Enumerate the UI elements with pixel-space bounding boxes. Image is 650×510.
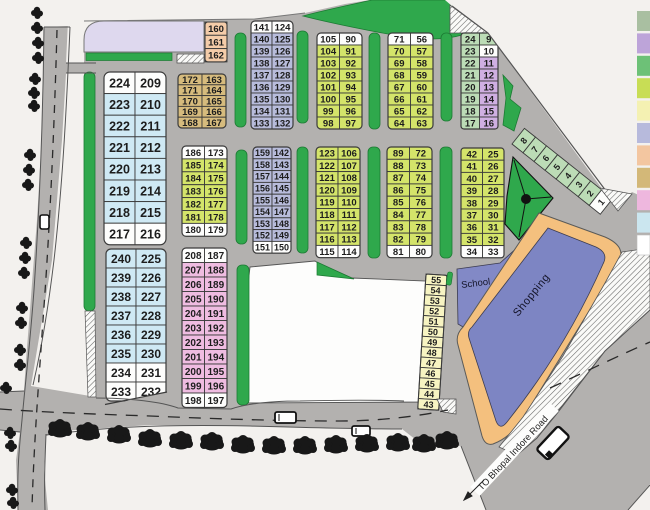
svg-text:153: 153 bbox=[255, 219, 270, 229]
svg-text:66: 66 bbox=[394, 94, 405, 105]
svg-text:133: 133 bbox=[254, 118, 270, 129]
svg-text:176: 176 bbox=[208, 187, 224, 198]
svg-text:86: 86 bbox=[393, 186, 404, 197]
svg-text:28: 28 bbox=[488, 186, 499, 197]
svg-text:149: 149 bbox=[274, 231, 289, 241]
svg-text:72: 72 bbox=[416, 149, 427, 160]
svg-text:159: 159 bbox=[255, 148, 270, 158]
svg-text:47: 47 bbox=[426, 358, 437, 369]
svg-text:35: 35 bbox=[467, 235, 478, 246]
svg-text:17: 17 bbox=[465, 118, 476, 129]
svg-text:189: 189 bbox=[207, 280, 224, 291]
svg-text:129: 129 bbox=[275, 82, 291, 93]
svg-text:220: 220 bbox=[109, 163, 130, 177]
svg-text:91: 91 bbox=[346, 46, 357, 57]
svg-text:67: 67 bbox=[394, 82, 405, 93]
svg-text:179: 179 bbox=[208, 225, 224, 236]
svg-text:156: 156 bbox=[255, 184, 270, 194]
svg-text:101: 101 bbox=[320, 82, 337, 93]
svg-text:104: 104 bbox=[320, 46, 337, 57]
svg-text:131: 131 bbox=[275, 106, 292, 117]
svg-text:13: 13 bbox=[484, 82, 495, 93]
svg-text:148: 148 bbox=[274, 219, 289, 229]
svg-text:24: 24 bbox=[465, 34, 476, 45]
svg-text:63: 63 bbox=[417, 118, 428, 129]
svg-text:95: 95 bbox=[346, 94, 357, 105]
svg-text:206: 206 bbox=[185, 280, 202, 291]
svg-text:83: 83 bbox=[393, 222, 404, 233]
svg-text:107: 107 bbox=[341, 161, 357, 172]
svg-text:192: 192 bbox=[207, 323, 224, 334]
svg-text:222: 222 bbox=[109, 120, 130, 134]
svg-text:113: 113 bbox=[341, 235, 356, 246]
svg-text:233: 233 bbox=[111, 385, 131, 399]
svg-text:26: 26 bbox=[488, 162, 499, 173]
svg-text:145: 145 bbox=[274, 184, 289, 194]
svg-text:204: 204 bbox=[185, 309, 202, 320]
svg-text:181: 181 bbox=[185, 212, 202, 223]
svg-text:138: 138 bbox=[254, 58, 270, 69]
svg-text:155: 155 bbox=[255, 195, 270, 205]
svg-text:239: 239 bbox=[111, 271, 131, 285]
svg-text:34: 34 bbox=[467, 247, 478, 258]
svg-text:71: 71 bbox=[394, 34, 405, 45]
svg-text:219: 219 bbox=[109, 184, 130, 198]
svg-text:199: 199 bbox=[185, 381, 202, 392]
svg-text:96: 96 bbox=[346, 106, 357, 117]
svg-text:18: 18 bbox=[465, 106, 476, 117]
svg-text:70: 70 bbox=[394, 46, 405, 57]
svg-text:213: 213 bbox=[140, 163, 161, 177]
svg-text:82: 82 bbox=[393, 235, 404, 246]
svg-text:68: 68 bbox=[394, 70, 405, 81]
svg-text:168: 168 bbox=[182, 118, 198, 129]
svg-text:132: 132 bbox=[275, 118, 291, 129]
svg-text:144: 144 bbox=[274, 172, 289, 182]
svg-text:12: 12 bbox=[484, 70, 495, 81]
svg-text:112: 112 bbox=[341, 222, 356, 233]
svg-text:124: 124 bbox=[275, 22, 292, 33]
svg-text:14: 14 bbox=[484, 94, 495, 105]
svg-text:238: 238 bbox=[111, 290, 131, 304]
svg-text:105: 105 bbox=[320, 34, 337, 45]
svg-text:23: 23 bbox=[465, 46, 476, 57]
svg-text:120: 120 bbox=[319, 186, 335, 197]
svg-text:75: 75 bbox=[416, 186, 427, 197]
svg-text:169: 169 bbox=[182, 107, 198, 118]
svg-text:216: 216 bbox=[140, 228, 161, 242]
svg-text:230: 230 bbox=[141, 347, 161, 361]
svg-text:103: 103 bbox=[320, 58, 336, 69]
svg-text:240: 240 bbox=[111, 252, 131, 266]
svg-text:166: 166 bbox=[206, 107, 222, 118]
svg-text:214: 214 bbox=[140, 184, 161, 198]
svg-text:167: 167 bbox=[206, 118, 222, 129]
svg-text:162: 162 bbox=[208, 51, 224, 62]
svg-text:205: 205 bbox=[185, 294, 202, 305]
svg-text:90: 90 bbox=[346, 34, 357, 45]
svg-text:64: 64 bbox=[394, 118, 405, 129]
svg-text:195: 195 bbox=[207, 367, 224, 378]
svg-text:30: 30 bbox=[488, 211, 499, 222]
svg-text:93: 93 bbox=[346, 70, 357, 81]
svg-text:62: 62 bbox=[417, 106, 428, 117]
svg-text:49: 49 bbox=[427, 337, 438, 348]
svg-text:146: 146 bbox=[274, 195, 289, 205]
svg-text:38: 38 bbox=[467, 198, 478, 209]
svg-text:50: 50 bbox=[428, 327, 439, 338]
svg-text:46: 46 bbox=[425, 368, 436, 379]
svg-text:10: 10 bbox=[484, 46, 495, 57]
svg-text:211: 211 bbox=[140, 120, 160, 134]
svg-text:87: 87 bbox=[393, 173, 404, 184]
svg-text:226: 226 bbox=[141, 271, 161, 285]
svg-text:53: 53 bbox=[430, 296, 441, 307]
svg-text:48: 48 bbox=[426, 347, 437, 358]
svg-text:19: 19 bbox=[465, 94, 476, 105]
svg-text:126: 126 bbox=[275, 46, 291, 57]
svg-text:221: 221 bbox=[109, 141, 130, 155]
svg-text:97: 97 bbox=[346, 118, 357, 129]
svg-text:36: 36 bbox=[467, 223, 478, 234]
svg-text:117: 117 bbox=[319, 222, 334, 233]
svg-text:134: 134 bbox=[254, 106, 271, 117]
svg-text:198: 198 bbox=[185, 396, 202, 407]
svg-text:174: 174 bbox=[208, 161, 225, 172]
svg-text:154: 154 bbox=[255, 207, 270, 217]
svg-text:203: 203 bbox=[185, 323, 202, 334]
svg-text:20: 20 bbox=[465, 82, 476, 93]
svg-text:212: 212 bbox=[140, 141, 161, 155]
svg-text:140: 140 bbox=[254, 34, 270, 45]
svg-text:163: 163 bbox=[206, 75, 222, 86]
svg-text:228: 228 bbox=[141, 309, 161, 323]
svg-text:56: 56 bbox=[417, 34, 428, 45]
svg-text:57: 57 bbox=[417, 46, 428, 57]
svg-text:197: 197 bbox=[207, 396, 224, 407]
svg-text:185: 185 bbox=[185, 161, 202, 172]
svg-text:84: 84 bbox=[393, 210, 404, 221]
svg-text:44: 44 bbox=[424, 389, 435, 400]
svg-text:237: 237 bbox=[111, 309, 131, 323]
svg-text:236: 236 bbox=[111, 328, 131, 342]
svg-text:41: 41 bbox=[467, 162, 478, 173]
svg-text:123: 123 bbox=[319, 149, 335, 160]
svg-text:76: 76 bbox=[416, 198, 427, 209]
svg-text:43: 43 bbox=[423, 399, 434, 410]
svg-text:207: 207 bbox=[185, 265, 202, 276]
svg-text:25: 25 bbox=[488, 150, 499, 161]
svg-text:152: 152 bbox=[255, 231, 270, 241]
svg-text:161: 161 bbox=[208, 37, 225, 48]
svg-text:79: 79 bbox=[416, 235, 427, 246]
svg-text:55: 55 bbox=[431, 275, 442, 286]
svg-text:150: 150 bbox=[274, 243, 289, 253]
svg-text:227: 227 bbox=[141, 290, 161, 304]
svg-text:59: 59 bbox=[417, 70, 428, 81]
svg-text:37: 37 bbox=[467, 211, 478, 222]
svg-text:235: 235 bbox=[111, 347, 131, 361]
svg-text:88: 88 bbox=[393, 161, 404, 172]
svg-text:229: 229 bbox=[141, 328, 161, 342]
svg-text:183: 183 bbox=[185, 187, 201, 198]
svg-text:73: 73 bbox=[416, 161, 427, 172]
svg-text:231: 231 bbox=[141, 366, 161, 380]
svg-text:173: 173 bbox=[208, 148, 224, 159]
svg-text:94: 94 bbox=[346, 82, 357, 93]
svg-text:158: 158 bbox=[255, 160, 270, 170]
svg-text:115: 115 bbox=[319, 247, 335, 258]
svg-text:180: 180 bbox=[185, 225, 201, 236]
svg-text:184: 184 bbox=[185, 174, 202, 185]
svg-text:190: 190 bbox=[207, 294, 224, 305]
svg-text:118: 118 bbox=[319, 210, 334, 221]
svg-text:65: 65 bbox=[394, 106, 405, 117]
svg-text:33: 33 bbox=[488, 247, 499, 258]
svg-text:102: 102 bbox=[320, 70, 336, 81]
svg-text:85: 85 bbox=[393, 198, 404, 209]
svg-text:187: 187 bbox=[207, 251, 224, 262]
svg-text:114: 114 bbox=[341, 247, 357, 258]
svg-text:136: 136 bbox=[254, 82, 270, 93]
svg-text:40: 40 bbox=[467, 174, 478, 185]
svg-text:27: 27 bbox=[488, 174, 499, 185]
svg-text:196: 196 bbox=[207, 381, 224, 392]
svg-text:122: 122 bbox=[319, 161, 335, 172]
svg-text:125: 125 bbox=[275, 34, 292, 45]
svg-text:175: 175 bbox=[208, 174, 225, 185]
svg-text:157: 157 bbox=[255, 172, 270, 182]
svg-text:139: 139 bbox=[254, 46, 270, 57]
svg-text:51: 51 bbox=[428, 316, 439, 327]
svg-text:223: 223 bbox=[109, 98, 130, 112]
svg-text:217: 217 bbox=[109, 228, 130, 242]
svg-text:111: 111 bbox=[342, 210, 358, 221]
svg-text:172: 172 bbox=[182, 75, 198, 86]
svg-text:191: 191 bbox=[207, 309, 224, 320]
svg-text:177: 177 bbox=[208, 199, 224, 210]
svg-text:215: 215 bbox=[140, 206, 161, 220]
svg-text:141: 141 bbox=[254, 22, 271, 33]
svg-text:99: 99 bbox=[323, 106, 334, 117]
svg-text:77: 77 bbox=[416, 210, 427, 221]
svg-text:194: 194 bbox=[207, 352, 224, 363]
svg-text:127: 127 bbox=[275, 58, 291, 69]
svg-text:209: 209 bbox=[140, 76, 161, 90]
svg-text:224: 224 bbox=[109, 76, 130, 90]
svg-text:22: 22 bbox=[465, 58, 476, 69]
svg-text:130: 130 bbox=[275, 94, 291, 105]
svg-text:106: 106 bbox=[341, 149, 357, 160]
svg-text:210: 210 bbox=[140, 98, 161, 112]
svg-text:116: 116 bbox=[319, 235, 334, 246]
svg-text:142: 142 bbox=[274, 148, 289, 158]
svg-text:60: 60 bbox=[417, 82, 428, 93]
svg-text:147: 147 bbox=[274, 207, 289, 217]
svg-text:58: 58 bbox=[417, 58, 428, 69]
svg-text:39: 39 bbox=[467, 186, 478, 197]
svg-text:110: 110 bbox=[341, 198, 356, 209]
svg-text:74: 74 bbox=[416, 173, 427, 184]
svg-text:16: 16 bbox=[484, 118, 495, 129]
svg-text:225: 225 bbox=[141, 252, 161, 266]
svg-text:160: 160 bbox=[208, 24, 224, 35]
svg-text:182: 182 bbox=[185, 199, 201, 210]
svg-text:31: 31 bbox=[488, 223, 499, 234]
svg-text:61: 61 bbox=[417, 94, 428, 105]
svg-text:98: 98 bbox=[323, 118, 334, 129]
svg-text:234: 234 bbox=[111, 366, 131, 380]
svg-text:92: 92 bbox=[346, 58, 357, 69]
svg-text:202: 202 bbox=[185, 338, 202, 349]
svg-text:151: 151 bbox=[255, 243, 270, 253]
svg-text:108: 108 bbox=[341, 173, 357, 184]
svg-text:80: 80 bbox=[416, 247, 427, 258]
svg-text:178: 178 bbox=[208, 212, 224, 223]
svg-text:119: 119 bbox=[319, 198, 334, 209]
svg-text:143: 143 bbox=[274, 160, 289, 170]
svg-text:201: 201 bbox=[185, 352, 202, 363]
svg-text:137: 137 bbox=[254, 70, 270, 81]
svg-text:54: 54 bbox=[430, 285, 441, 296]
svg-text:45: 45 bbox=[424, 379, 435, 390]
svg-text:218: 218 bbox=[109, 206, 130, 220]
svg-text:78: 78 bbox=[416, 222, 427, 233]
svg-text:32: 32 bbox=[488, 235, 499, 246]
svg-text:15: 15 bbox=[484, 106, 495, 117]
svg-text:186: 186 bbox=[185, 148, 201, 159]
svg-text:29: 29 bbox=[488, 198, 499, 209]
svg-text:164: 164 bbox=[206, 86, 223, 97]
svg-text:165: 165 bbox=[206, 96, 223, 107]
svg-text:170: 170 bbox=[182, 96, 198, 107]
svg-text:42: 42 bbox=[467, 150, 478, 161]
svg-text:193: 193 bbox=[207, 338, 224, 349]
svg-text:69: 69 bbox=[394, 58, 405, 69]
svg-text:52: 52 bbox=[429, 306, 440, 317]
svg-text:109: 109 bbox=[341, 186, 357, 197]
svg-text:81: 81 bbox=[393, 247, 404, 258]
svg-text:100: 100 bbox=[320, 94, 336, 105]
svg-text:128: 128 bbox=[275, 70, 291, 81]
svg-text:121: 121 bbox=[319, 173, 336, 184]
svg-text:188: 188 bbox=[207, 265, 224, 276]
svg-text:21: 21 bbox=[465, 70, 476, 81]
svg-text:208: 208 bbox=[185, 251, 202, 262]
svg-text:89: 89 bbox=[393, 149, 404, 160]
svg-text:171: 171 bbox=[182, 86, 199, 97]
svg-text:135: 135 bbox=[254, 94, 271, 105]
svg-text:200: 200 bbox=[185, 367, 202, 378]
svg-text:11: 11 bbox=[484, 58, 495, 69]
